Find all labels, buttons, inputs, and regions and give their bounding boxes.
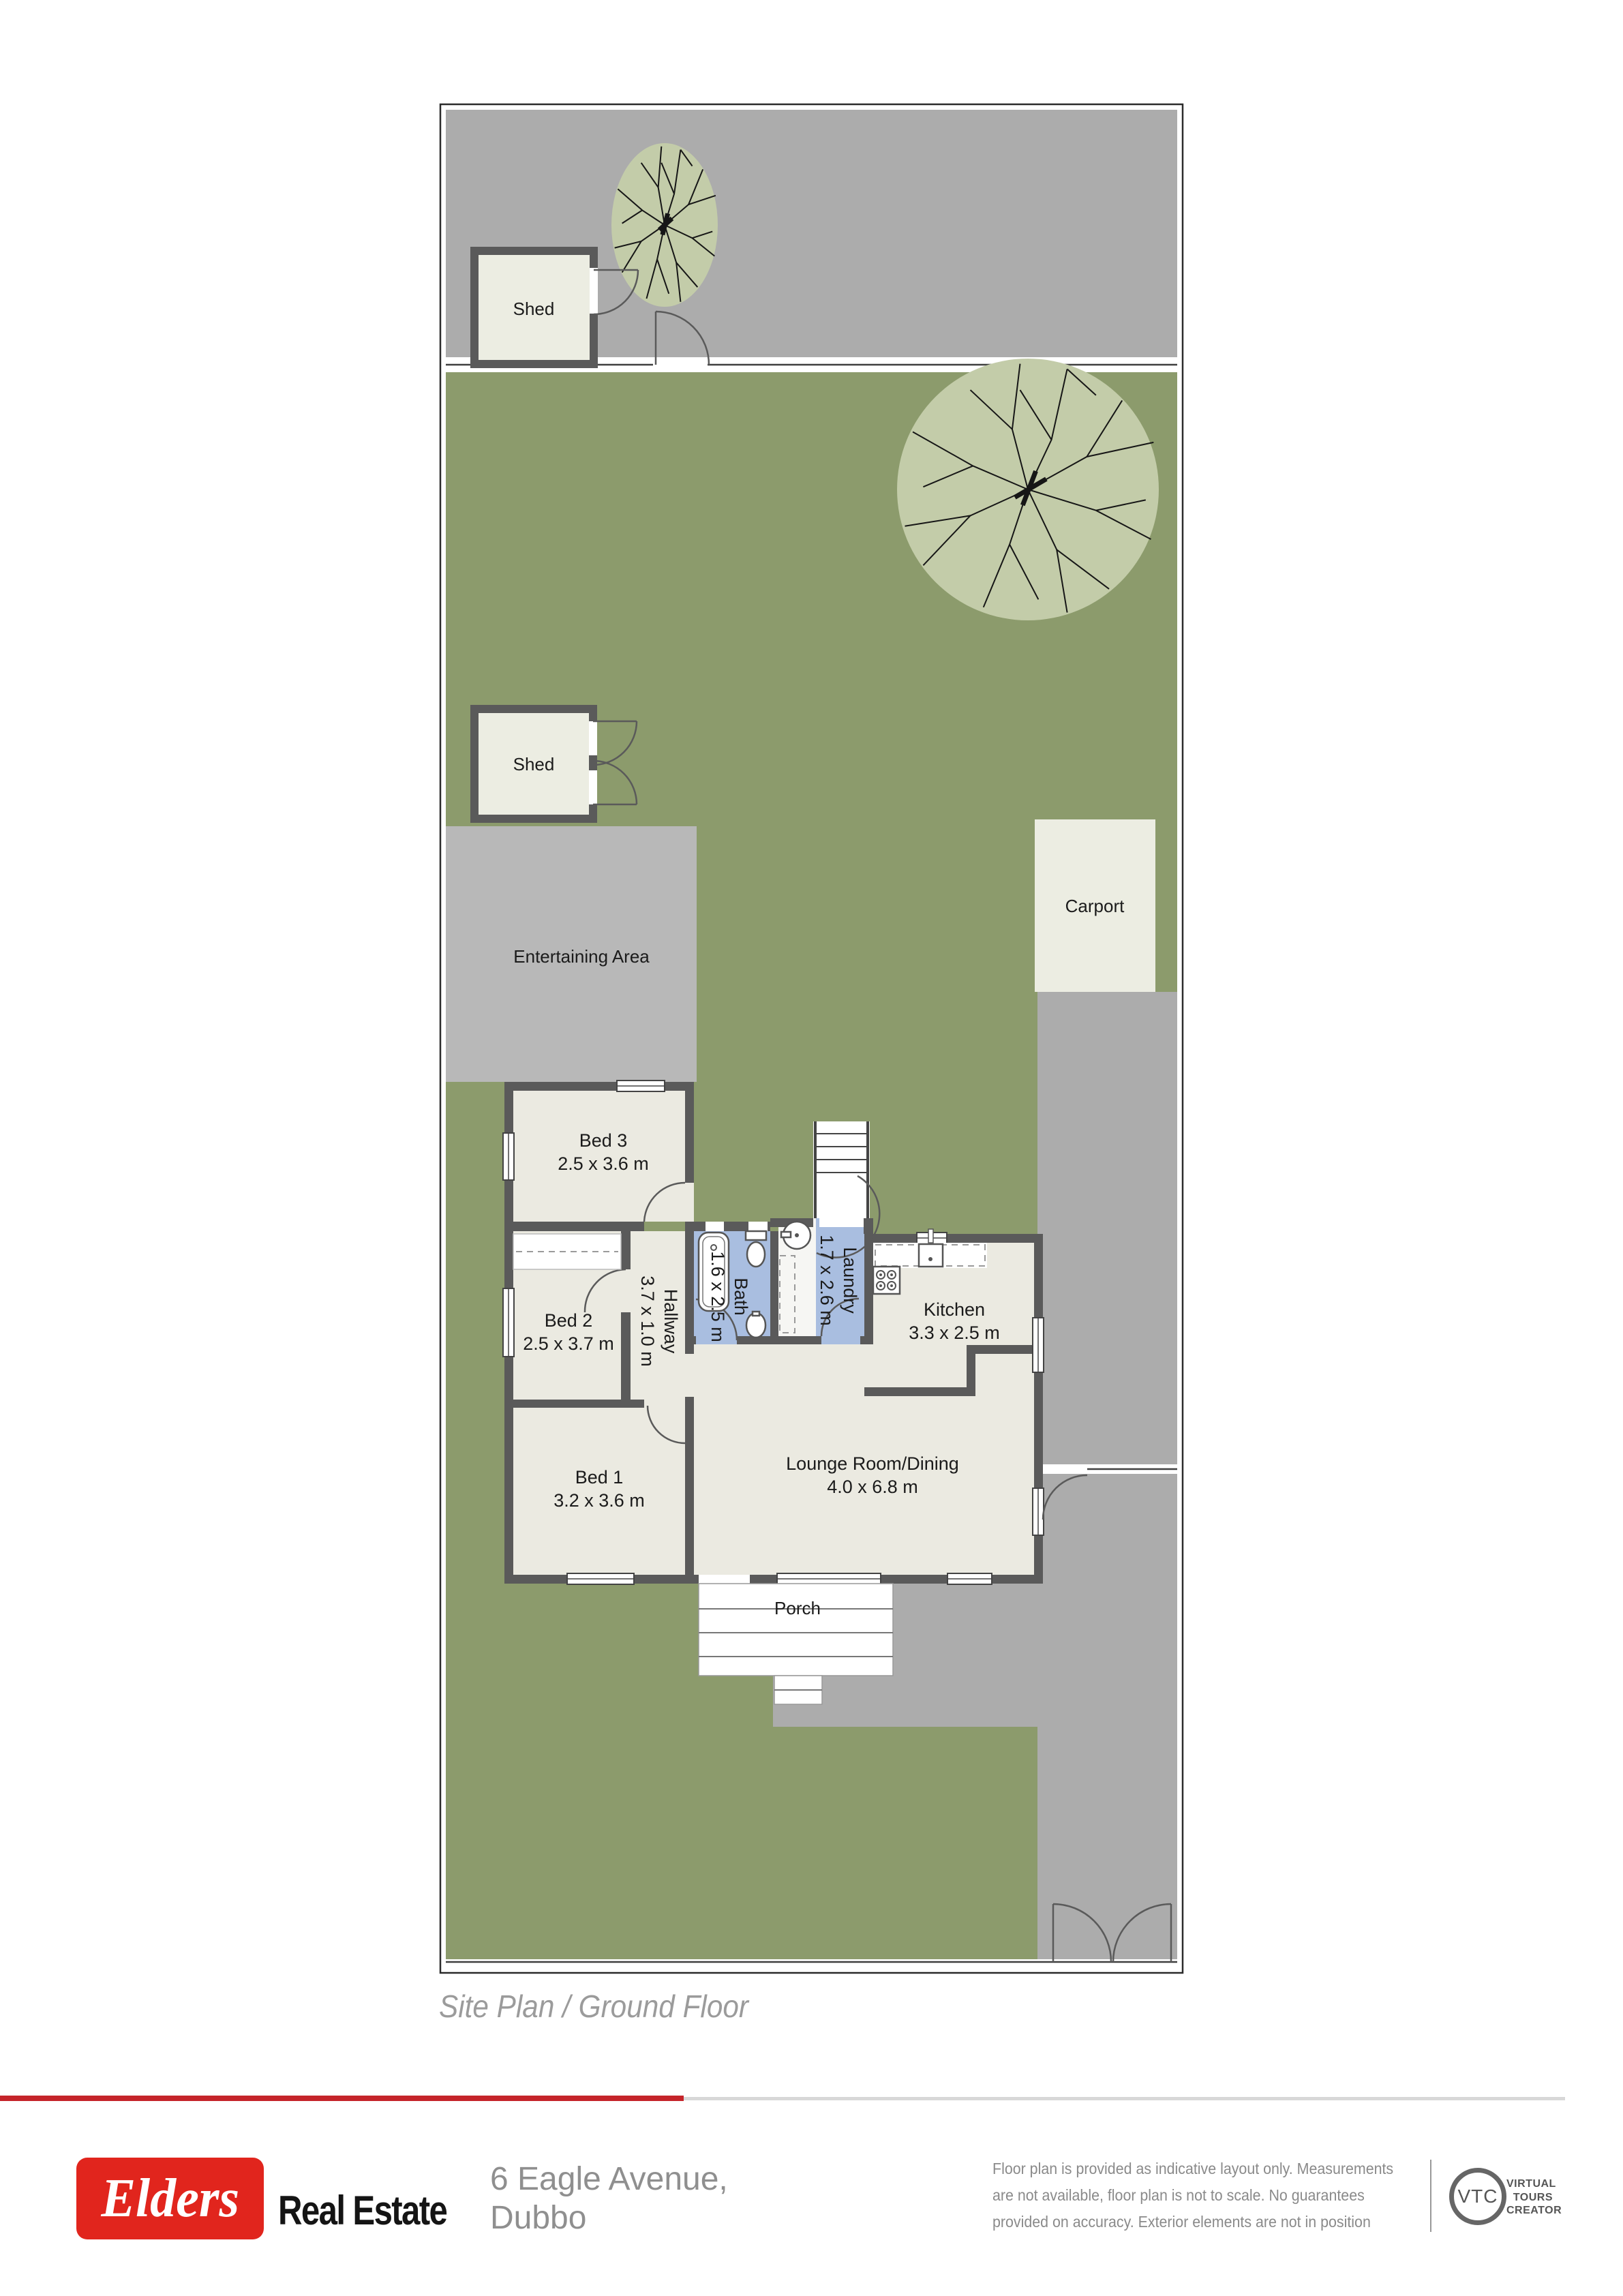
disclaimer-line: provided on accuracy. Exterior elements …: [992, 2209, 1411, 2235]
elders-logo-text: Elders: [101, 2168, 239, 2230]
vtc-logo: VTC: [1449, 2168, 1506, 2225]
hallway-dims: 3.7 x 1.0 m: [637, 1275, 658, 1367]
bed1-dims: 3.2 x 3.6 m: [553, 1490, 645, 1511]
address-line2: Dubbo: [490, 2199, 728, 2237]
disclaimer: Floor plan is provided as indicative lay…: [992, 2156, 1411, 2235]
tree-icon: [897, 359, 1159, 620]
disclaimer-line: are not available, floor plan is not to …: [992, 2182, 1411, 2209]
kitchen-name: Kitchen: [924, 1299, 985, 1320]
rear-path: [893, 1584, 1177, 1655]
lounge-dims: 4.0 x 6.8 m: [827, 1477, 918, 1497]
plan-caption: Site Plan / Ground Floor: [439, 1988, 748, 2025]
red-divider: [0, 2096, 684, 2101]
vtc-word: CREATOR: [1506, 2204, 1553, 2218]
vtc-word: TOURS: [1506, 2191, 1553, 2205]
toilet-icon: [746, 1231, 766, 1267]
shed-rear-label: Shed: [513, 299, 555, 319]
footer-divider: [1430, 2160, 1431, 2232]
address-line1: 6 Eagle Avenue,: [490, 2160, 728, 2199]
kitchen-dims: 3.3 x 2.5 m: [909, 1323, 1000, 1343]
gray-divider: [684, 2097, 1565, 2100]
porch-label: Porch: [774, 1598, 821, 1618]
laundry-name: Laundry: [840, 1247, 860, 1314]
stove-icon: [873, 1267, 900, 1294]
shed-middle-label: Shed: [513, 754, 555, 774]
bed3-name: Bed 3: [579, 1130, 628, 1151]
hallway-name: Hallway: [661, 1289, 681, 1354]
side-driveway: [1037, 992, 1177, 1959]
lounge-name: Lounge Room/Dining: [786, 1453, 959, 1474]
laundry-dims: 1.7 x 2.6 m: [817, 1235, 837, 1326]
tree-icon: [611, 143, 718, 307]
bed3-dims: 2.5 x 3.6 m: [558, 1153, 649, 1174]
site-plan: Shed Shed Entertaining Area Carport: [0, 0, 1623, 2296]
vtc-words: VIRTUAL TOURS CREATOR: [1506, 2177, 1553, 2218]
bed2-name: Bed 2: [545, 1310, 593, 1331]
entertaining-label: Entertaining Area: [513, 946, 650, 967]
disclaimer-line: Floor plan is provided as indicative lay…: [992, 2156, 1411, 2182]
bath-name: Bath: [731, 1278, 751, 1316]
elders-logo: Elders: [76, 2158, 264, 2239]
vtc-abbr: VTC: [1458, 2186, 1498, 2207]
bed2-dims: 2.5 x 3.7 m: [523, 1333, 614, 1354]
bath-dims: 1.6 x 2.5 m: [708, 1251, 728, 1342]
bottom-fence-band: [446, 1959, 1177, 1967]
bed1-name: Bed 1: [575, 1467, 624, 1487]
vtc-word: VIRTUAL: [1506, 2177, 1553, 2191]
carport-label: Carport: [1065, 896, 1125, 916]
property-address: 6 Eagle Avenue, Dubbo: [490, 2160, 728, 2237]
brand-suffix: Real Estate: [278, 2187, 446, 2234]
